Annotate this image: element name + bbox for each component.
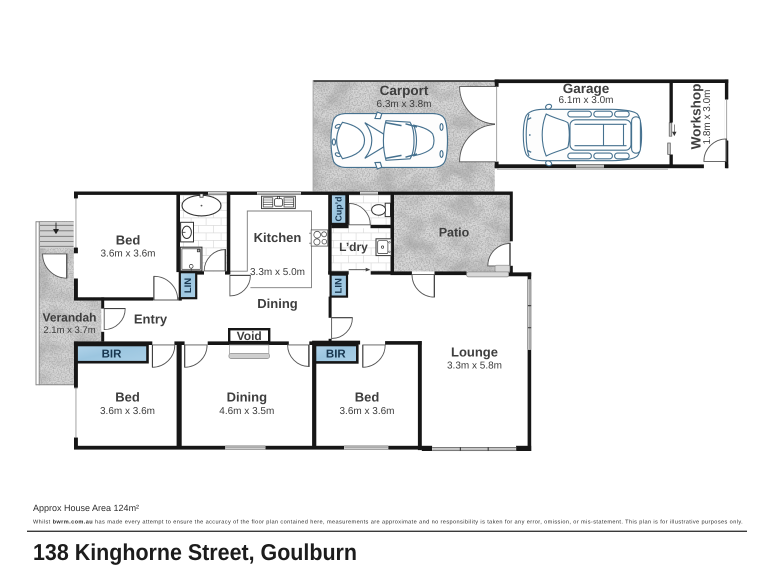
svg-text:6.1m x 3.0m: 6.1m x 3.0m [558,95,613,106]
svg-text:Cup’d: Cup’d [334,197,344,222]
svg-text:Kitchen: Kitchen [254,230,302,245]
svg-text:Entry: Entry [134,312,168,327]
svg-text:2.1m x 3.7m: 2.1m x 3.7m [43,325,95,336]
svg-text:Carport: Carport [380,83,429,98]
svg-text:LIN: LIN [183,278,194,293]
svg-text:6.3m x 3.8m: 6.3m x 3.8m [376,99,431,110]
svg-text:3.6m x 3.6m: 3.6m x 3.6m [100,406,155,417]
svg-text:Dining: Dining [227,390,267,405]
svg-text:Verandah: Verandah [42,311,96,325]
svg-text:Garage: Garage [563,81,610,96]
svg-text:138 Kinghorne Street, Goulburn: 138 Kinghorne Street, Goulburn [33,539,357,565]
svg-text:L’dry: L’dry [339,240,368,254]
svg-text:Lounge: Lounge [451,345,498,360]
svg-text:1.8m x 3.0m: 1.8m x 3.0m [702,89,713,144]
svg-text:BIR: BIR [102,349,123,361]
svg-text:Approx House Area 124m²: Approx House Area 124m² [33,503,139,513]
svg-text:Whilst bwrm.com.au has made ev: Whilst bwrm.com.au has made every attemp… [33,519,743,526]
svg-text:BIR: BIR [326,349,347,361]
svg-text:3.6m x 3.6m: 3.6m x 3.6m [339,406,394,417]
svg-text:4.6m x 3.5m: 4.6m x 3.5m [219,406,274,417]
svg-text:Bed: Bed [355,390,380,405]
svg-text:Patio: Patio [439,226,470,240]
svg-text:Bed: Bed [115,390,140,405]
svg-text:LIN: LIN [334,278,345,293]
svg-text:Void: Void [237,329,262,343]
svg-text:Dining: Dining [257,296,297,311]
svg-text:3.6m x 3.6m: 3.6m x 3.6m [100,249,155,260]
svg-text:Bed: Bed [116,233,141,248]
svg-text:3.3m x 5.0m: 3.3m x 5.0m [250,267,305,278]
svg-text:3.3m x 5.8m: 3.3m x 5.8m [447,361,502,372]
